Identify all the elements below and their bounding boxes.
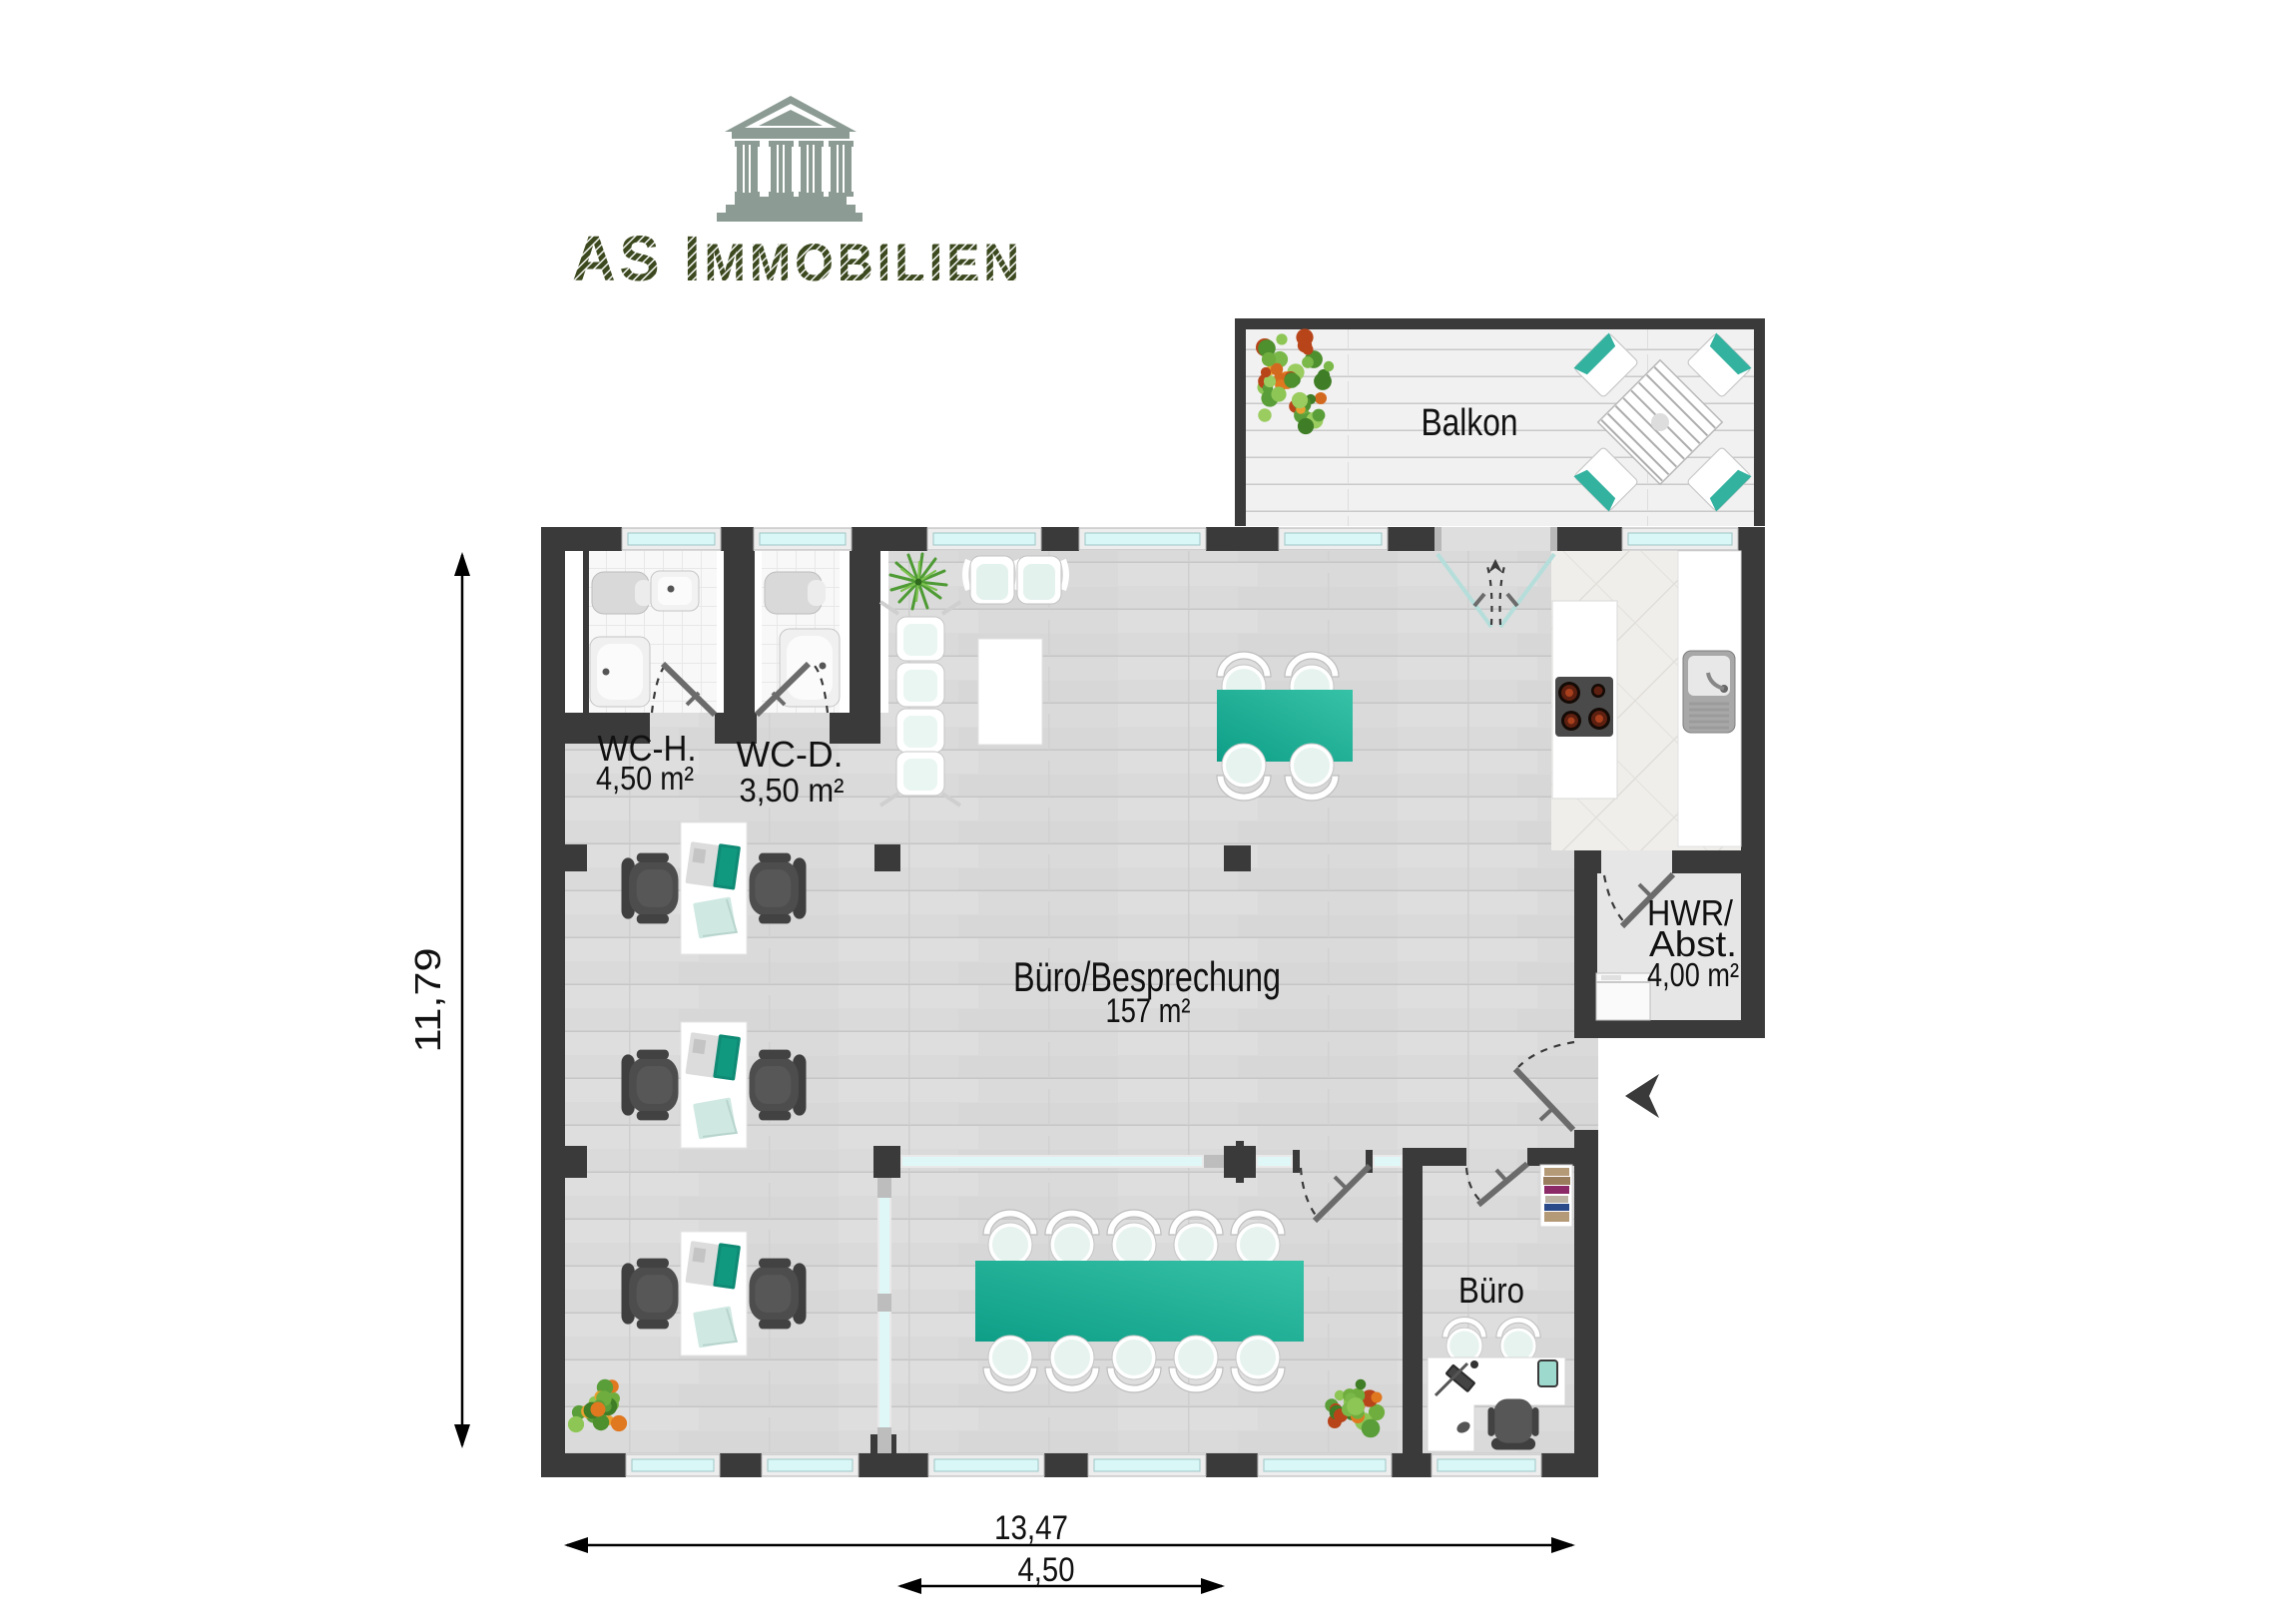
svg-text:11,79: 11,79 [407, 948, 448, 1053]
svg-text:157 m²: 157 m² [1106, 992, 1191, 1030]
svg-text:Büro: Büro [1458, 1270, 1524, 1311]
svg-text:4,50 m²: 4,50 m² [596, 760, 694, 797]
svg-text:Balkon: Balkon [1422, 402, 1518, 444]
svg-text:4,50: 4,50 [1018, 1551, 1075, 1589]
svg-text:WC-D.: WC-D. [737, 734, 844, 775]
svg-text:4,00 m²: 4,00 m² [1647, 956, 1739, 993]
svg-text:3,50 m²: 3,50 m² [740, 772, 845, 809]
svg-text:AS IMMOBILIEN: AS IMMOBILIEN [572, 223, 1023, 294]
svg-text:13,47: 13,47 [994, 1509, 1068, 1547]
